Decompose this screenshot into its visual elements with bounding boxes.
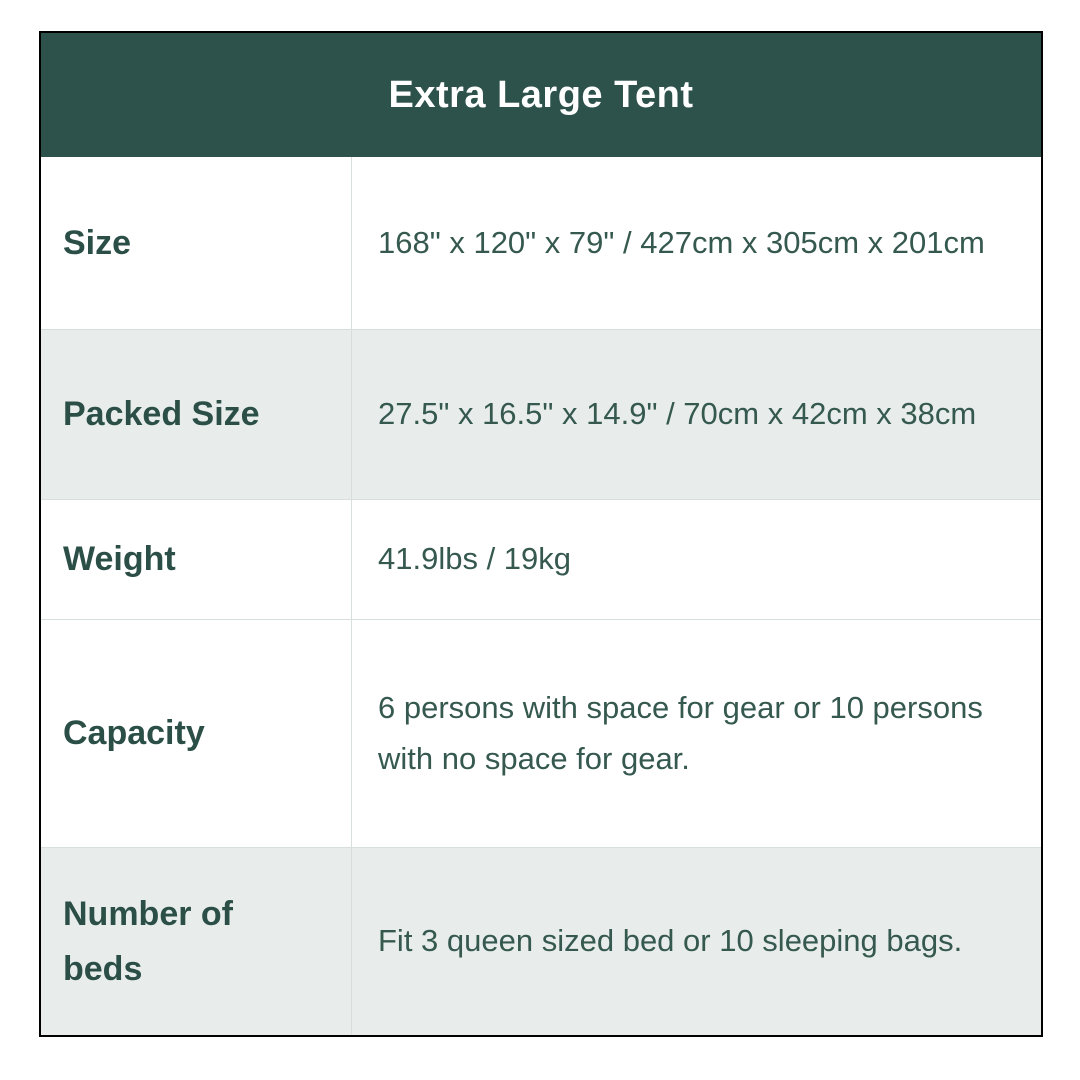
row-value-packed-size: 27.5" x 16.5" x 14.9" / 70cm x 42cm x 38…	[351, 330, 1041, 499]
spec-row-packed-size: Packed Size 27.5" x 16.5" x 14.9" / 70cm…	[41, 329, 1041, 499]
row-label-packed-size: Packed Size	[41, 330, 351, 499]
table-header: Extra Large Tent	[41, 33, 1041, 157]
row-value-number-of-beds: Fit 3 queen sized bed or 10 sleeping bag…	[351, 848, 1041, 1035]
row-label-capacity: Capacity	[41, 620, 351, 847]
spec-row-capacity: Capacity 6 persons with space for gear o…	[41, 619, 1041, 847]
spec-row-number-of-beds: Number of beds Fit 3 queen sized bed or …	[41, 847, 1041, 1035]
spec-row-weight: Weight 41.9lbs / 19kg	[41, 499, 1041, 619]
spec-table: Extra Large Tent Size 168" x 120" x 79" …	[39, 31, 1043, 1037]
row-value-size: 168" x 120" x 79" / 427cm x 305cm x 201c…	[351, 157, 1041, 329]
row-value-weight: 41.9lbs / 19kg	[351, 500, 1041, 619]
row-value-capacity: 6 persons with space for gear or 10 pers…	[351, 620, 1041, 847]
spec-row-size: Size 168" x 120" x 79" / 427cm x 305cm x…	[41, 157, 1041, 329]
row-label-size: Size	[41, 157, 351, 329]
row-label-number-of-beds: Number of beds	[41, 848, 351, 1035]
table-title: Extra Large Tent	[388, 74, 693, 117]
row-label-weight: Weight	[41, 500, 351, 619]
